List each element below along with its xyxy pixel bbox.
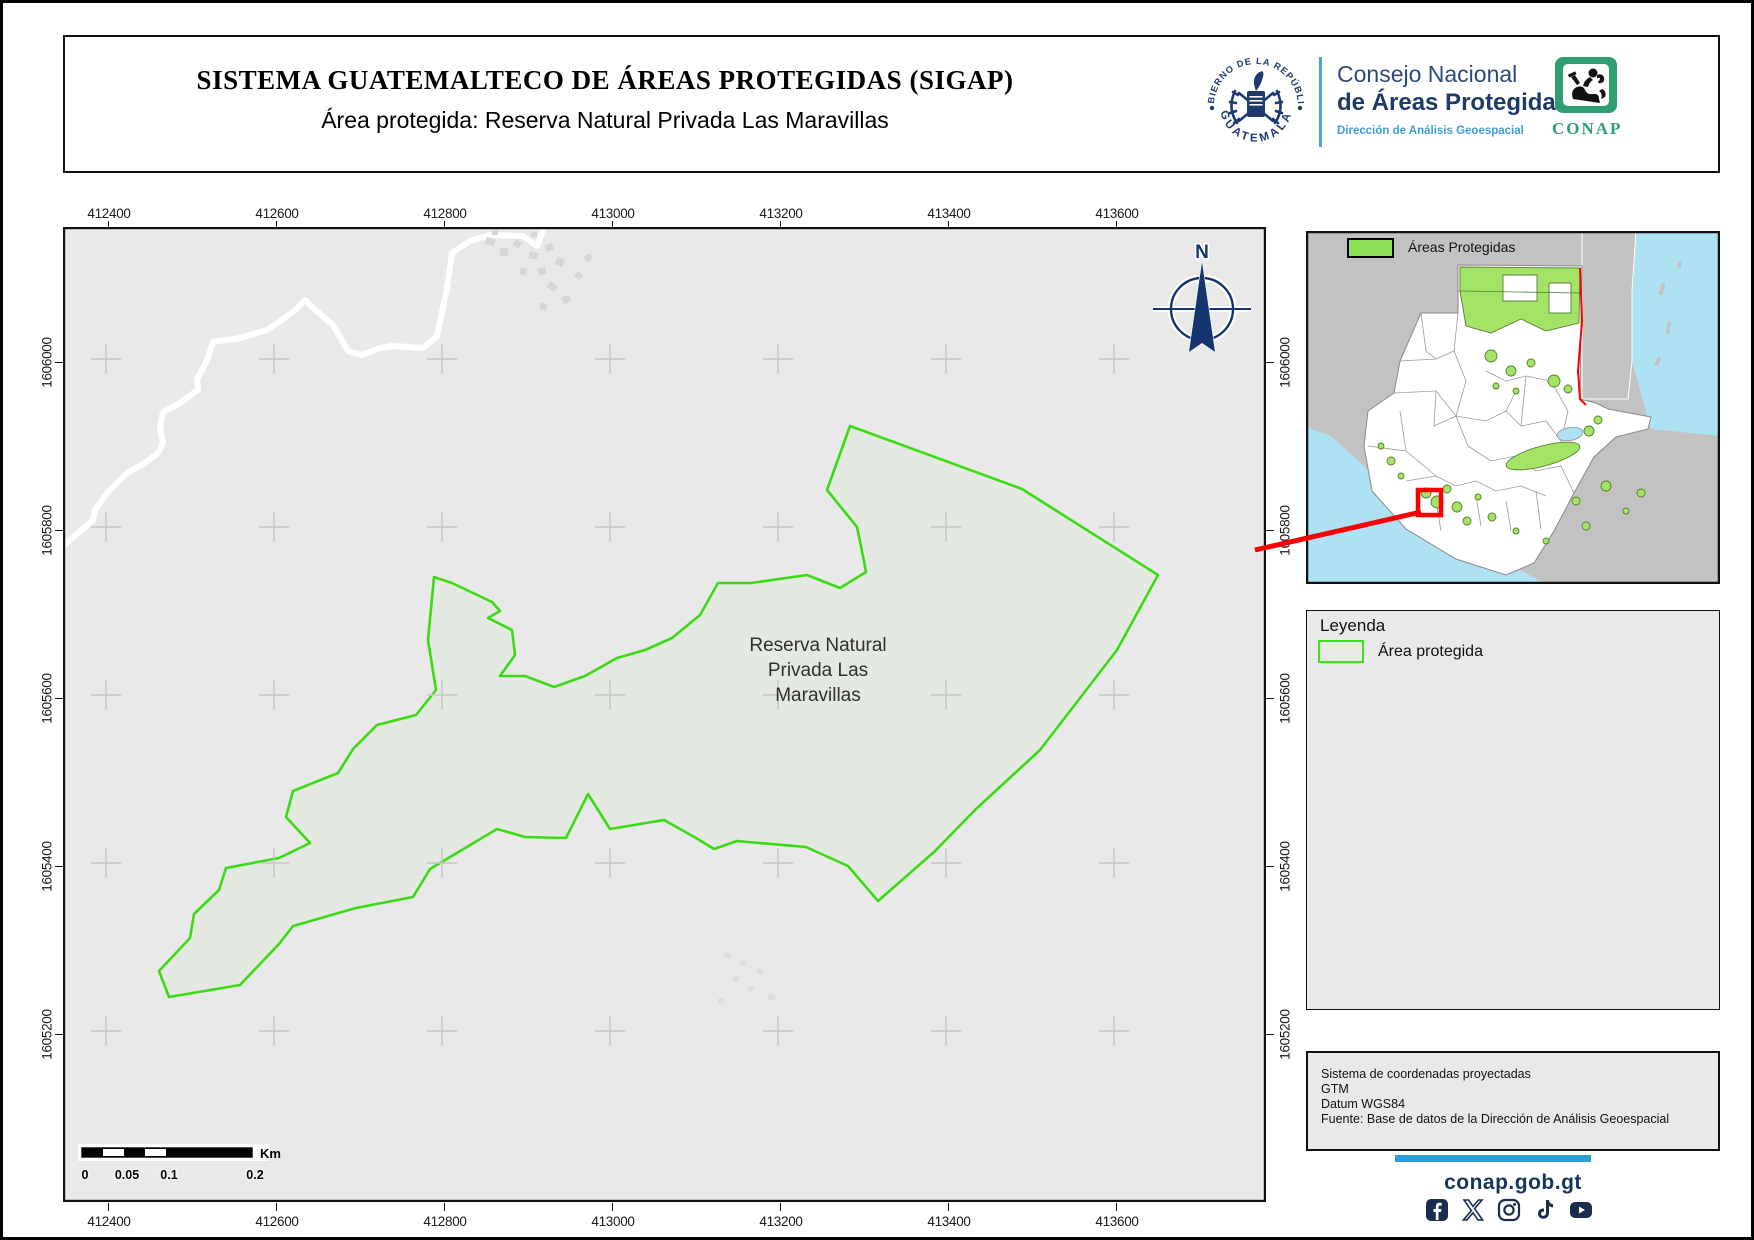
org-name-line3: Dirección de Análisis Geoespacial	[1337, 125, 1524, 137]
belize-land	[1582, 231, 1636, 399]
header-box: SISTEMA GUATEMALTECO DE ÁREAS PROTEGIDAS…	[63, 35, 1720, 173]
x-tick-bot-412600: 412600	[237, 1214, 317, 1229]
seal-quetzal	[1254, 71, 1264, 91]
instagram-icon[interactable]	[1497, 1198, 1521, 1222]
y-tick-right-1605600: 1605600	[1278, 659, 1293, 739]
x-tick-top-412600: 412600	[237, 206, 317, 221]
page-subtitle: Área protegida: Reserva Natural Privada …	[125, 107, 1085, 134]
caribbean-sea	[1632, 231, 1720, 436]
y-tick-right-1605400: 1605400	[1278, 827, 1293, 907]
reserve-label: Reserva Natural Privada Las Maravillas	[688, 633, 948, 708]
y-tick-right-1605200: 1605200	[1278, 995, 1293, 1075]
footer-blue-bar	[1395, 1155, 1591, 1162]
org-name-line1: Consejo Nacional	[1337, 61, 1517, 88]
x-tick-bot-413000: 413000	[573, 1214, 653, 1229]
scale-label-0: 0	[82, 1168, 89, 1182]
inset-legend-swatch	[1348, 239, 1393, 257]
y-tick-left-1606000: 1606000	[40, 323, 55, 403]
conap-logo-label: CONAP	[1552, 119, 1622, 139]
tiktok-icon[interactable]	[1533, 1198, 1557, 1222]
legend-item-label: Área protegida	[1378, 643, 1483, 661]
north-label: N	[1195, 242, 1209, 263]
facebook-icon[interactable]	[1425, 1198, 1449, 1222]
legend-swatch-area-protegida	[1318, 640, 1364, 663]
legend-title: Leyenda	[1320, 616, 1385, 636]
x-tick-bot-413200: 413200	[741, 1214, 821, 1229]
org-name-line2: de Áreas Protegidas	[1337, 89, 1569, 117]
government-seal: GOBIERNO DE LA REPÚBLICA GUATEMALA	[1201, 51, 1311, 161]
x-tick-bot-413600: 413600	[1077, 1214, 1157, 1229]
x-tick-top-412400: 412400	[69, 206, 149, 221]
scale-label-01: 0.1	[160, 1168, 177, 1182]
y-tick-left-1605800: 1605800	[40, 491, 55, 571]
x-tick-bot-412400: 412400	[69, 1214, 149, 1229]
scale-unit: Km	[260, 1146, 281, 1161]
y-tick-left-1605600: 1605600	[40, 659, 55, 739]
x-tick-top-413600: 413600	[1077, 206, 1157, 221]
locator-leader-line	[1243, 498, 1433, 560]
header-divider	[1319, 57, 1322, 147]
conap-logo	[1553, 55, 1619, 115]
y-tick-right-1606000: 1606000	[1278, 323, 1293, 403]
inset-legend-label: Áreas Protegidas	[1408, 239, 1515, 255]
social-icons-row	[1425, 1197, 1601, 1223]
y-tick-left-1605400: 1605400	[40, 827, 55, 907]
reserve-label-line2: Privada Las	[688, 658, 948, 683]
y-tick-left-1605200: 1605200	[40, 995, 55, 1075]
x-icon[interactable]	[1461, 1198, 1485, 1222]
x-tick-top-413400: 413400	[909, 206, 989, 221]
main-map[interactable]: N Km	[63, 227, 1266, 1202]
youtube-icon[interactable]	[1569, 1198, 1593, 1222]
x-tick-bot-412800: 412800	[405, 1214, 485, 1229]
legend-box: Leyenda Área protegida	[1306, 610, 1720, 1010]
map-sheet: SISTEMA GUATEMALTECO DE ÁREAS PROTEGIDAS…	[0, 0, 1754, 1240]
projection-info-text: Sistema de coordenadas proyectadas GTM D…	[1321, 1067, 1711, 1127]
scale-bar: Km	[78, 1144, 281, 1161]
scale-label-02: 0.2	[246, 1168, 263, 1182]
page-title: SISTEMA GUATEMALTECO DE ÁREAS PROTEGIDAS…	[125, 65, 1085, 96]
projection-info-box: Sistema de coordenadas proyectadas GTM D…	[1306, 1051, 1720, 1151]
x-tick-top-413200: 413200	[741, 206, 821, 221]
reserve-label-line3: Maravillas	[688, 683, 948, 708]
x-tick-top-412800: 412800	[405, 206, 485, 221]
x-tick-top-413000: 413000	[573, 206, 653, 221]
reserve-label-line1: Reserva Natural	[688, 633, 948, 658]
x-tick-bot-413400: 413400	[909, 1214, 989, 1229]
footer-site-link[interactable]: conap.gob.gt	[1403, 1171, 1623, 1195]
scale-label-005: 0.05	[115, 1168, 139, 1182]
